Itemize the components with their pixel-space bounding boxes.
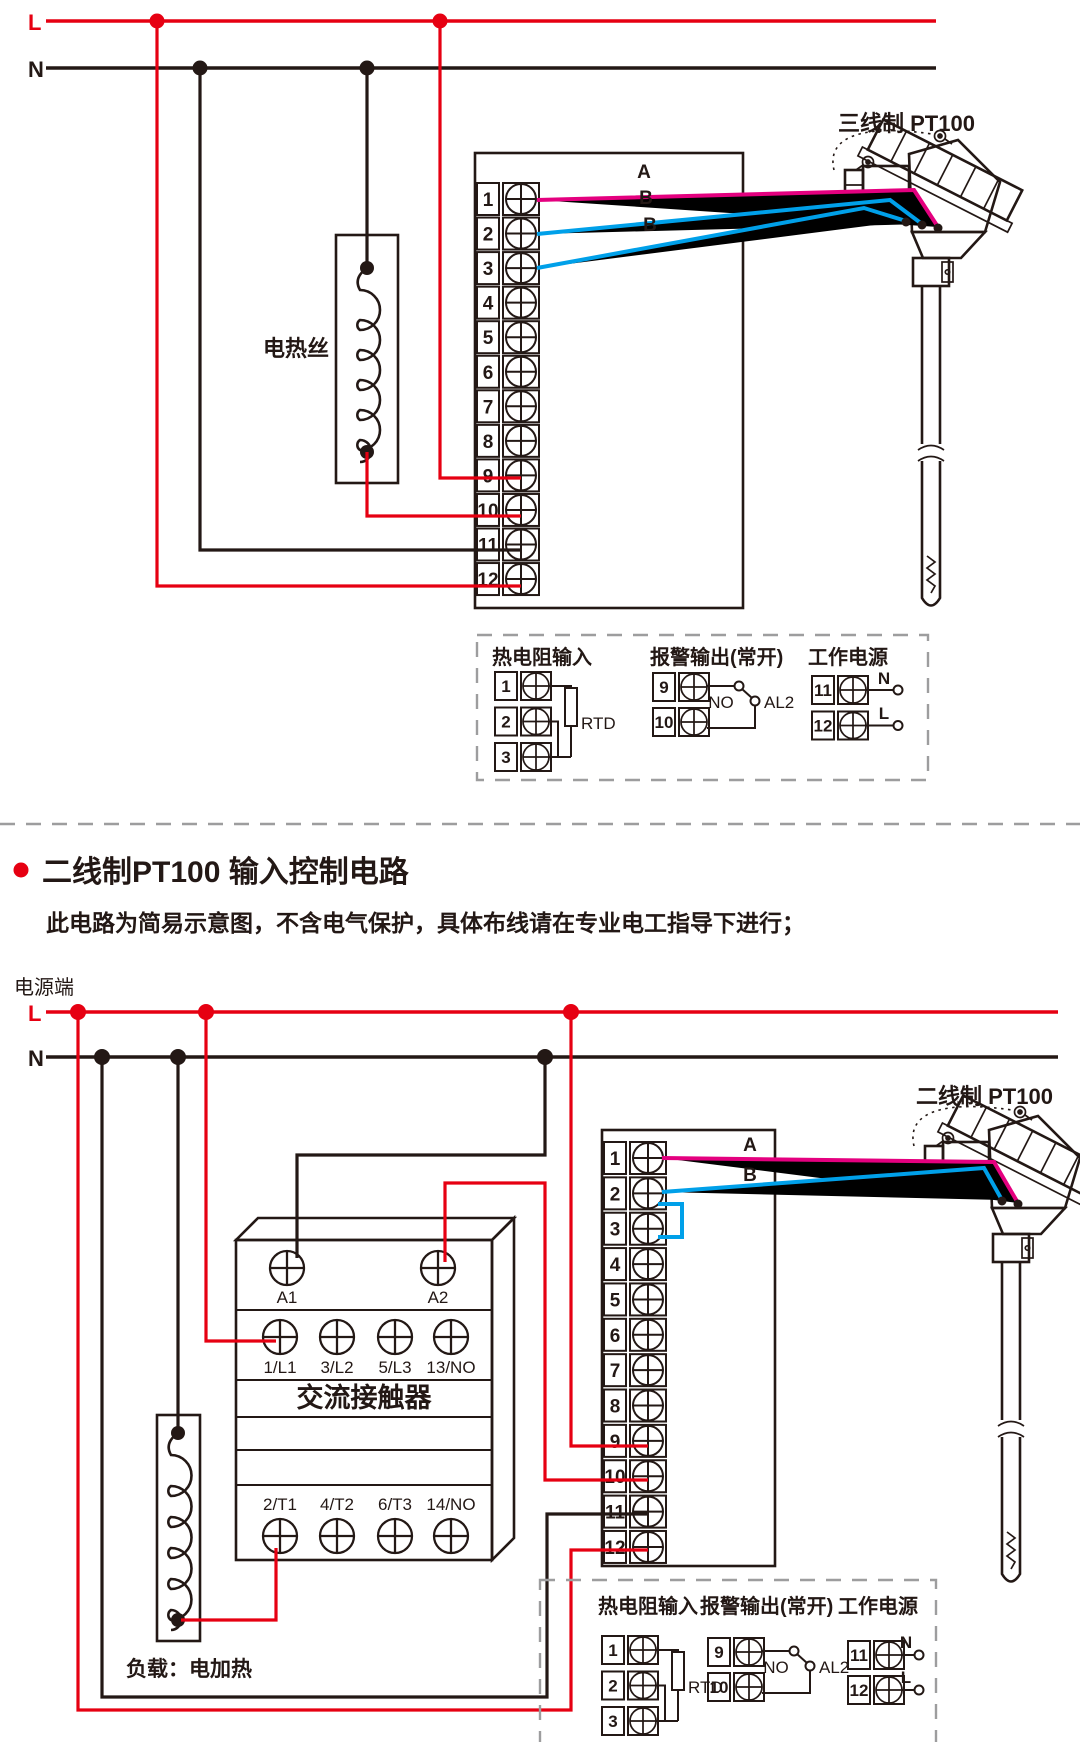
terminal-number: 11 (478, 536, 499, 557)
terminal-number: 7 (483, 397, 494, 418)
screw-terminal-icon (263, 1320, 297, 1354)
screw-terminal-icon (633, 1532, 663, 1562)
terminal-number: 9 (610, 1432, 621, 1453)
switch-lever-icon (742, 689, 752, 698)
screw-terminal-icon (523, 708, 549, 734)
terminal-number: 3 (610, 1220, 621, 1241)
wiring-diagram-page: L N 电热丝 123456789101112 三线制 PT100 A B (0, 0, 1080, 1742)
screw-terminal-icon (506, 219, 536, 249)
al2-label: AL2 (819, 1658, 849, 1677)
terminal-row: 12 (604, 1531, 666, 1563)
terminal-number: 4 (483, 294, 494, 315)
wire-label-a: A (637, 162, 651, 183)
screw-terminal-icon (633, 1249, 663, 1279)
wire-l-to-contactor-1l1 (206, 1012, 276, 1341)
screw-terminal-icon (681, 674, 707, 700)
screw-terminal-icon (633, 1497, 663, 1527)
contactor-terminal-label: 5/L3 (378, 1358, 411, 1377)
terminal-number: 2 (610, 1184, 621, 1205)
screw-terminal-icon (320, 1519, 354, 1553)
screw-terminal-icon (320, 1320, 354, 1354)
screw-terminal-icon (378, 1519, 412, 1553)
switch-lever-icon (797, 1654, 807, 1663)
terminal-number: 5 (483, 328, 494, 349)
terminal-row: 5 (604, 1283, 666, 1315)
contactor-terminal-label: 3/L2 (320, 1358, 353, 1377)
screw-terminal-icon (736, 1674, 762, 1700)
rtd-resistor-icon (565, 688, 577, 726)
contactor-terminal-label: 6/T3 (378, 1495, 412, 1514)
wire-l-to-terminal-12 (157, 21, 521, 586)
screw-terminal-icon (506, 184, 536, 214)
two-wire-circuit: 电源端 L N A1A21/L13/L25/L313/NO2/T14/T26/T… (14, 976, 1080, 1742)
screw-terminal-icon (633, 1355, 663, 1385)
sensor-wire-dot (934, 224, 943, 233)
wire-n-to-contactor-a1 (297, 1057, 545, 1258)
terminal-number: 1 (501, 677, 510, 696)
ac-contactor: A1A21/L13/L25/L313/NO2/T14/T26/T314/NO 交… (236, 1218, 514, 1560)
contactor-terminal-label: A1 (277, 1288, 298, 1307)
load-label: 负载：电加热 (126, 1657, 252, 1681)
terminal-block: 123456789101112 (604, 1142, 666, 1563)
terminal-number: 1 (608, 1641, 617, 1660)
terminal-row: 7 (477, 390, 539, 422)
contact-point-icon (915, 1686, 924, 1695)
power-l-label: L (901, 1668, 911, 1687)
screw-terminal-icon (523, 673, 549, 699)
terminal-number: 12 (814, 717, 833, 736)
screw-terminal-icon (876, 1642, 902, 1668)
bullet-icon (14, 863, 29, 878)
screw-terminal-icon (506, 426, 536, 456)
terminal-row: 3 (604, 1213, 666, 1245)
screw-terminal-icon (506, 253, 536, 283)
screw-terminal-icon (633, 1320, 663, 1350)
wire-label-b: B (743, 1165, 757, 1186)
legend-bottom: 热电阻输入 报警输出(常开) 工作电源 1239101112 RTD NO AL… (540, 1580, 936, 1742)
contactor-name: 交流接触器 (297, 1382, 433, 1413)
terminal-number: 6 (610, 1326, 621, 1347)
power-terminal-label: 电源端 (14, 976, 74, 999)
screw-terminal-icon (681, 709, 707, 735)
screw-terminal-icon (633, 1391, 663, 1421)
terminal-number: 4 (610, 1255, 621, 1276)
legend-title-alarm: 报警输出(常开) (700, 1594, 833, 1618)
terminal-number: 1 (610, 1149, 621, 1170)
screw-terminal-icon (840, 677, 866, 703)
terminal-row: 2 (604, 1177, 666, 1209)
sensor-wire-dot (902, 218, 911, 227)
wire-label-a: A (743, 1135, 757, 1156)
line-label-l: L (28, 10, 41, 35)
line-label-l: L (28, 1001, 41, 1026)
terminal-row: 7 (604, 1354, 666, 1386)
terminal-number: 5 (610, 1290, 621, 1311)
screw-terminal-icon (506, 495, 536, 525)
wire-l-to-terminal-12 (78, 1012, 648, 1710)
heater-label: 电热丝 (263, 336, 329, 361)
line-label-n: N (28, 57, 44, 82)
screw-terminal-icon (263, 1519, 297, 1553)
junction-dot (170, 1049, 186, 1065)
sensor-label: 二线制 PT100 (916, 1084, 1053, 1109)
screw-terminal-icon (840, 712, 866, 738)
contactor-terminal-label: 14/NO (426, 1495, 475, 1514)
screw-terminal-icon (633, 1461, 663, 1491)
junction-dot (150, 14, 165, 29)
screw-terminal-icon (506, 322, 536, 352)
terminal-row: 6 (477, 356, 539, 388)
screw-terminal-icon (633, 1426, 663, 1456)
al2-label: AL2 (764, 693, 794, 712)
legend-title-rtd: 热电阻输入 (598, 1594, 698, 1618)
contactor-terminal-label: 4/T2 (320, 1495, 354, 1514)
terminal-number: 9 (714, 1643, 723, 1662)
screw-terminal-icon (506, 564, 536, 594)
terminal-number: 2 (483, 225, 494, 246)
screw-terminal-icon (506, 288, 536, 318)
section-title: 二线制PT100 输入控制电路 (42, 856, 410, 889)
contact-point-icon (894, 721, 903, 730)
terminal-row: 10 (604, 1460, 666, 1492)
heating-element (336, 235, 398, 483)
terminal-row: 10 (477, 494, 539, 526)
terminal-number: 2 (501, 713, 510, 732)
terminal-number: 12 (850, 1681, 869, 1700)
wire-label-b1: B (639, 188, 653, 209)
terminal-number: 1 (483, 190, 494, 211)
terminal-number: 6 (483, 363, 494, 384)
power-n-label: N (900, 1633, 912, 1652)
terminal-row: 6 (604, 1319, 666, 1351)
screw-terminal-icon (434, 1320, 468, 1354)
junction-dot (537, 1049, 553, 1065)
contactor-terminal-label: 13/NO (426, 1358, 475, 1377)
controller-box (602, 1130, 775, 1566)
terminal-row: 12 (477, 563, 539, 595)
screw-terminal-icon (633, 1143, 663, 1173)
screw-terminal-icon (633, 1214, 663, 1244)
rtd-resistor-icon (672, 1652, 684, 1690)
screw-terminal-icon (506, 357, 536, 387)
screw-terminal-icon (506, 460, 536, 490)
terminal-number: 8 (483, 432, 494, 453)
screw-terminal-icon (736, 1639, 762, 1665)
no-contact-label: NO (763, 1658, 789, 1677)
contactor-terminal-label: 2/T1 (263, 1495, 297, 1514)
legend-top: 热电阻输入 报警输出(常开) 工作电源 1239101112 RTD NO AL… (477, 635, 928, 780)
three-wire-circuit: L N 电热丝 123456789101112 三线制 PT100 A B (28, 10, 1028, 780)
terminal-number: 11 (814, 681, 832, 700)
junction-dot (70, 1004, 86, 1020)
terminal-number: 3 (483, 259, 494, 280)
section-subtitle: 此电路为简易示意图，不含电气保护，具体布线请在专业电工指导下进行； (46, 910, 805, 936)
screw-terminal-icon (633, 1284, 663, 1314)
legend-title-alarm: 报警输出(常开) (650, 645, 783, 669)
terminal-number: 10 (477, 501, 498, 522)
contactor-terminal-label: 1/L1 (263, 1358, 296, 1377)
terminal-number: 2 (608, 1677, 617, 1696)
terminal-row: 11 (604, 1496, 666, 1528)
terminal-row: 3 (477, 252, 539, 284)
load-heater (157, 1415, 200, 1641)
power-l-label: L (879, 704, 889, 723)
terminal-row: 11 (477, 529, 539, 561)
wire-n-to-terminal-11 (102, 1057, 648, 1697)
terminal-row: 4 (477, 287, 539, 319)
screw-terminal-icon (421, 1251, 455, 1285)
contact-point-icon (751, 697, 760, 706)
terminal-number: 9 (659, 678, 668, 697)
contactor-terminal-label: A2 (428, 1288, 449, 1307)
terminal-row: 8 (477, 425, 539, 457)
terminal-row: 1 (604, 1142, 666, 1174)
legend-title-rtd: 热电阻输入 (492, 645, 592, 669)
sensor-wire-dot (998, 1197, 1007, 1206)
rtd-label: RTD (688, 1678, 723, 1697)
line-label-n: N (28, 1046, 44, 1071)
junction-dot (193, 61, 208, 76)
screw-terminal-icon (523, 744, 549, 770)
terminal-block: 123456789101112 (477, 183, 539, 595)
contact-point-icon (915, 1651, 924, 1660)
terminal-row: 9 (477, 459, 539, 491)
terminal-row: 4 (604, 1248, 666, 1280)
legend-title-power: 工作电源 (808, 645, 888, 669)
wire-label-b2: B (643, 215, 657, 236)
screw-terminal-icon (270, 1251, 304, 1285)
terminal-number: 3 (501, 748, 510, 767)
sensor-label: 三线制 PT100 (838, 111, 975, 136)
terminal-number: 10 (655, 713, 674, 732)
junction-dot (94, 1049, 110, 1065)
junction-dot (433, 14, 448, 29)
screw-terminal-icon (506, 530, 536, 560)
sensor-wire-dot (918, 221, 927, 230)
sensor-wire-dot (1014, 1200, 1023, 1209)
screw-terminal-icon (630, 1708, 656, 1734)
terminal-number: 7 (610, 1361, 621, 1382)
screw-terminal-icon (876, 1677, 902, 1703)
terminal-number: 8 (610, 1397, 621, 1418)
terminal-row: 2 (477, 218, 539, 250)
screw-terminal-icon (630, 1672, 656, 1698)
junction-dot (563, 1004, 579, 1020)
screw-terminal-icon (434, 1519, 468, 1553)
junction-dot (198, 1004, 214, 1020)
no-contact-label: NO (708, 693, 734, 712)
rtd-label: RTD (581, 714, 616, 733)
legend-rows: 1239101112 (495, 672, 903, 771)
terminal-number: 11 (850, 1646, 868, 1665)
wiring-diagram: L N 电热丝 123456789101112 三线制 PT100 A B (0, 0, 1080, 1742)
terminal-number: 10 (604, 1467, 625, 1488)
terminal-number: 3 (608, 1712, 617, 1731)
legend-title-power: 工作电源 (838, 1594, 918, 1618)
power-n-label: N (878, 669, 890, 688)
terminal-row: 1 (477, 183, 539, 215)
contact-point-icon (806, 1662, 815, 1671)
contact-point-icon (894, 686, 903, 695)
terminal-row: 9 (604, 1425, 666, 1457)
screw-terminal-icon (506, 391, 536, 421)
junction-dot (360, 61, 375, 76)
terminal-row: 8 (604, 1390, 666, 1422)
terminal-number: 12 (477, 570, 498, 591)
section-heading: 二线制PT100 输入控制电路 此电路为简易示意图，不含电气保护，具体布线请在专… (14, 856, 806, 936)
legend-rows: 1239101112 (602, 1636, 924, 1735)
screw-terminal-icon (378, 1320, 412, 1354)
screw-terminal-icon (630, 1637, 656, 1663)
terminal-row: 5 (477, 321, 539, 353)
